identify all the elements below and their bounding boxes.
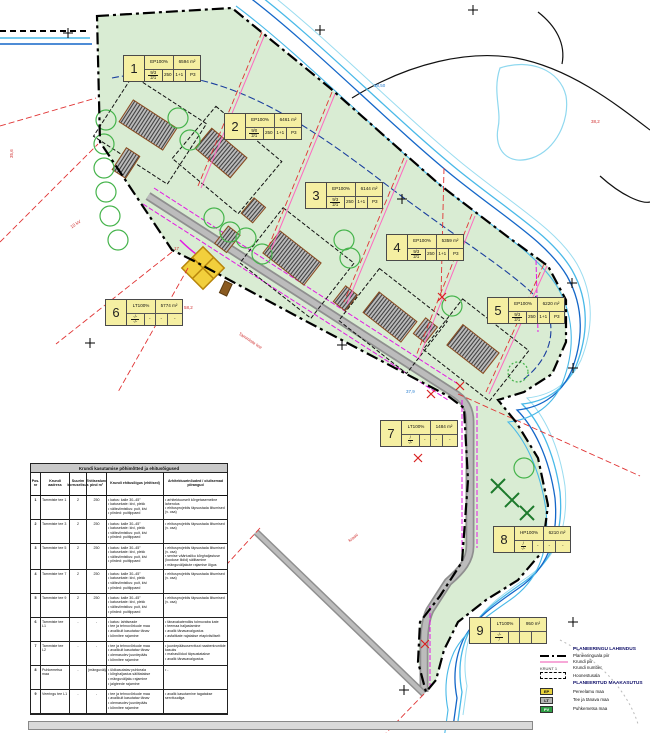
titleblock-strip [28, 721, 533, 730]
legend-item: PV Puhkemetsa maa [540, 706, 648, 713]
plot-floors: 1+1 [173, 69, 185, 82]
legend-item: EP Pereelamu maa [540, 688, 648, 695]
plot-number-symbol: KRUNT 1 [540, 666, 557, 671]
plot-floors: - [543, 540, 555, 553]
plot-number: 7 [381, 421, 402, 446]
legend-landuse-title: PLANEERITUD MAAKASUTUS [573, 681, 648, 686]
table-header: Pos. nr Krundi aadress Suurim korruselis… [31, 473, 227, 496]
plot-floors: 1+1 [274, 127, 286, 140]
table-row: 8Puhkemetsa maa-(mänguväljak)• üldkasuta… [31, 666, 227, 690]
plot-number: 8 [494, 527, 515, 552]
plot-number: 6 [106, 300, 127, 325]
legend: PLANEERINGU LAHENDUS Planeeringuala piir… [540, 645, 648, 714]
plot-boundary-symbol [540, 661, 568, 663]
plot-area: 6220 m² [537, 298, 564, 311]
plot-ratio: 9/32/1 [509, 311, 526, 324]
building-rights-table: Krundi kasutamise põhimõtted ja ehitusõi… [30, 463, 228, 715]
plot-number: 9 [470, 618, 491, 643]
plot-max-footprint [508, 631, 520, 644]
plot-floors [519, 631, 531, 644]
boundary-symbol [540, 655, 568, 658]
plot-floors: 1+1 [355, 196, 367, 209]
plot-label[interactable]: 3 EP100% 6144 m² 9/32/1 250 1+1 P3 [305, 182, 383, 209]
plot-floors: 1+1 [537, 311, 549, 324]
plot-parking: P3 [367, 196, 382, 209]
plot-floors: - [155, 313, 167, 326]
plot-max-footprint: 250 [263, 127, 275, 140]
channel-lines [0, 31, 92, 44]
plot-ratio: 9/32/1 [327, 196, 344, 209]
plot-label[interactable]: 5 EP100% 6220 m² 9/32/1 250 1+1 P3 [487, 297, 565, 324]
plot-number: 2 [225, 114, 246, 139]
plot-max-footprint: - [144, 313, 156, 326]
col-header: Pos. nr [31, 473, 40, 495]
plot-max-footprint: - [532, 540, 544, 553]
landuse-swatch-ep: EP [540, 688, 553, 695]
plot-area: 1484 m² [430, 421, 457, 434]
legend-item: KRUNT 1 Krundi number [540, 666, 648, 671]
plot-ratio: 9/02/1 [246, 127, 263, 140]
plot-max-footprint: 250 [344, 196, 356, 209]
plot-parking: P3 [549, 311, 564, 324]
plot-number: 1 [124, 56, 145, 81]
plot-label[interactable]: 7 LT100% 1484 m² /-/- - - - [380, 420, 458, 447]
table-row: 9Veeringu tee L1--• tee ja tehnovõrkude … [31, 690, 227, 714]
landuse-swatch-pv: PV [540, 706, 553, 713]
col-header: Arhitektuurinõuded / olulisemad piirangu… [163, 473, 227, 495]
legend-solution-title: PLANEERINGU LAHENDUS [573, 647, 648, 652]
plot-area: 5774 m² [155, 300, 182, 313]
plot-landuse-code: LT100% [402, 421, 430, 434]
legend-item: Hoonestusala [540, 672, 648, 679]
plot-parking: P3 [286, 127, 301, 140]
table-row: 7Tammiste tee L2--• tee ja tehnovõrkude … [31, 642, 227, 666]
plot-area: 6461 m² [274, 114, 301, 127]
plot-parking: P3 [448, 248, 463, 261]
col-header: Suurim korruselisus [69, 473, 86, 495]
plot-area: 6594 m² [173, 56, 200, 69]
table-row: 4Tammiste tee 72250• katus: kalle 30–45°… [31, 570, 227, 594]
plot-floors: 1+1 [436, 248, 448, 261]
plot-parking: - [442, 434, 457, 447]
plot-area: 6210 m² [543, 527, 570, 540]
col-header: Ehitisealune pind m² [86, 473, 106, 495]
plot-label[interactable]: 1 EP100% 6594 m² 9/32/1 250 1+1 P3 [123, 55, 201, 82]
col-header: Krundi aadress [40, 473, 69, 495]
plot-landuse-code: EP100% [408, 235, 436, 248]
plot-label[interactable]: 2 EP100% 6461 m² 9/02/1 250 1+1 P3 [224, 113, 302, 140]
envelope-symbol [540, 672, 566, 679]
plot-landuse-code: HP100% [515, 527, 543, 540]
table-title: Krundi kasutamise põhimõtted ja ehitusõi… [31, 464, 227, 473]
plot-parking: P3 [185, 69, 200, 82]
table-row: 3Tammiste tee 52250• katus: kalle 30–45°… [31, 544, 227, 570]
col-header: Krundi ehitusõigus (ehitised) [106, 473, 163, 495]
plot-ratio: -/-/ [491, 631, 508, 644]
plan-drawing: 1 EP100% 6594 m² 9/32/1 250 1+1 P3 2 EP1… [0, 0, 650, 733]
plot-ratio: 9/32/1 [145, 69, 162, 82]
plot-label[interactable]: 8 HP100% 6210 m² /-/- - - - [493, 526, 571, 553]
plot-number: 3 [306, 183, 327, 208]
plot-ratio: -/--/- [127, 313, 144, 326]
plot-label[interactable]: 4 EP100% 5359 m² 9/32/1 250 1+1 P3 [386, 234, 464, 261]
plot-ratio: /-/- [402, 434, 419, 447]
table-row: 2Tammiste tee 32250• katus: kalle 30–45°… [31, 520, 227, 544]
table-row: 5Tammiste tee 92250• katus: kalle 30–45°… [31, 594, 227, 618]
plot-label[interactable]: 6 LT100% 5774 m² -/--/- - - - [105, 299, 183, 326]
legend-item: Krundi piir [540, 660, 648, 664]
legend-item: LT Tee ja tänava maa [540, 697, 648, 704]
plot-ratio: /-/- [515, 540, 532, 553]
landuse-swatch-lt: LT [540, 697, 553, 704]
plot-ratio: 9/32/1 [408, 248, 425, 261]
table-row: 1Tammiste tee 12250• katus: kalle 30–45°… [31, 496, 227, 520]
plot-max-footprint: 250 [526, 311, 538, 324]
plot-landuse-code: EP100% [246, 114, 274, 127]
plot-landuse-code: LT100% [127, 300, 155, 313]
plot-number: 4 [387, 235, 408, 260]
legend-item: Planeeringuala piir [540, 654, 648, 658]
table-row: 6Tammiste tee L1--• katus: lahtiseade• t… [31, 618, 227, 642]
plot-landuse-code: EP100% [509, 298, 537, 311]
plot-landuse-code: EP100% [145, 56, 173, 69]
plot-floors: - [430, 434, 442, 447]
plot-max-footprint: - [419, 434, 431, 447]
plot-area: 5359 m² [436, 235, 463, 248]
plot-parking: - [167, 313, 182, 326]
plot-label[interactable]: 9 LT100% 950 m² -/-/ [469, 617, 547, 644]
plot-landuse-code: LT100% [491, 618, 519, 631]
plot-area: 6144 m² [355, 183, 382, 196]
plot-landuse-code: EP100% [327, 183, 355, 196]
plot-area: 950 m² [519, 618, 546, 631]
plot-parking [531, 631, 546, 644]
pond-outline [497, 64, 567, 160]
plot-max-footprint: 250 [162, 69, 174, 82]
plot-max-footprint: 250 [425, 248, 437, 261]
plot-parking: - [555, 540, 570, 553]
plot-number: 5 [488, 298, 509, 323]
